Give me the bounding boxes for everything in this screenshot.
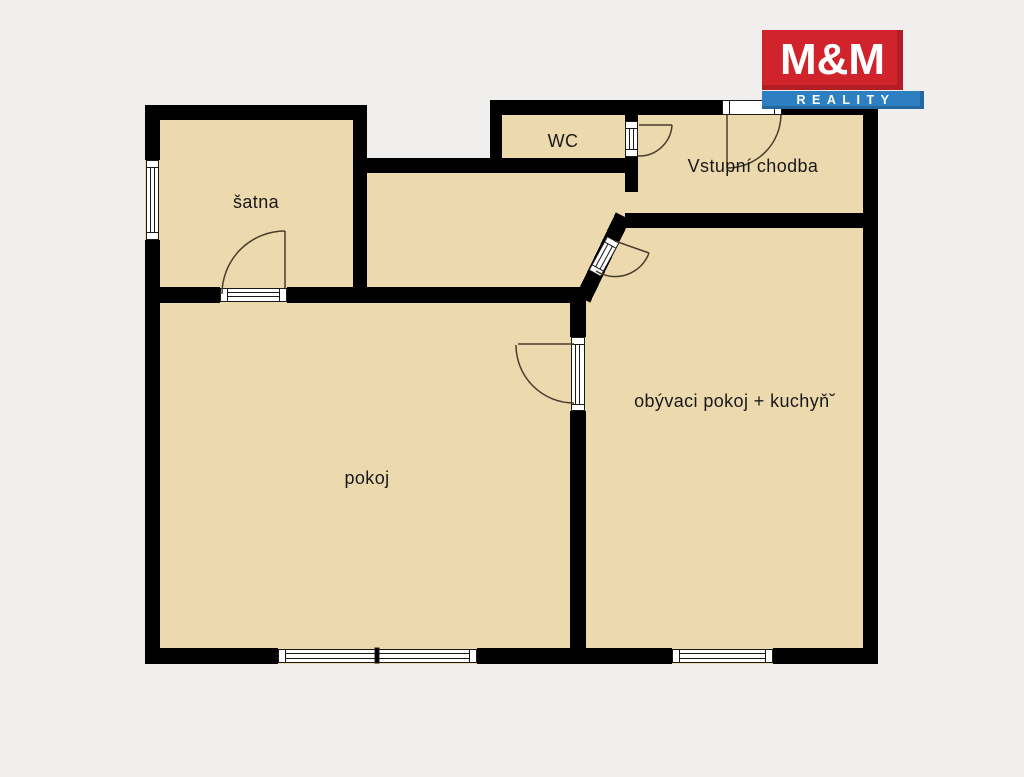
wall-hall-bottom xyxy=(625,213,878,228)
wall-right xyxy=(863,100,878,664)
window-living-bottom xyxy=(673,650,773,663)
wall-satna-bottom-a xyxy=(145,287,220,303)
wall-top-left xyxy=(145,105,367,120)
room-label-obyvaci-pokoj-kuchyn: obývaci pokoj + kuchyň˘ xyxy=(634,392,836,410)
room-label-pokoj: pokoj xyxy=(344,469,389,487)
wall-left-lower xyxy=(145,240,160,664)
door-gap-satna xyxy=(221,289,287,302)
door-gap-wc xyxy=(626,122,638,157)
floorplan-drawing xyxy=(0,0,1024,777)
wall-wc-right-upper xyxy=(625,100,638,121)
wall-wc-left xyxy=(490,100,502,158)
wall-satna-right xyxy=(353,105,367,302)
wall-corridor-top xyxy=(353,158,638,173)
mm-reality-logo: M&M REALITY xyxy=(762,30,924,109)
wall-divider-lower xyxy=(570,411,586,664)
room-label-wc: WC xyxy=(548,132,579,150)
apartment-floor xyxy=(145,100,878,664)
wall-pokoj-top xyxy=(287,287,585,303)
wall-bottom-a xyxy=(145,648,278,664)
logo-mm-text: M&M xyxy=(762,30,903,90)
wall-bottom-c xyxy=(773,648,878,664)
window-satna-left xyxy=(147,161,159,240)
floorplan-canvas: šatna WC Vstupní chodba pokoj obývaci po… xyxy=(0,0,1024,777)
wall-wc-right-lower xyxy=(625,157,638,192)
window-pokoj-bottom xyxy=(279,648,477,663)
wall-left-upper xyxy=(145,105,160,160)
logo-reality-text: REALITY xyxy=(762,91,924,109)
room-label-satna: šatna xyxy=(233,193,279,211)
window-mullion xyxy=(375,648,379,663)
door-gap-pokoj xyxy=(572,338,585,411)
room-label-vstupni-chodba: Vstupní chodba xyxy=(688,157,819,175)
wall-top-right-a xyxy=(490,100,722,115)
